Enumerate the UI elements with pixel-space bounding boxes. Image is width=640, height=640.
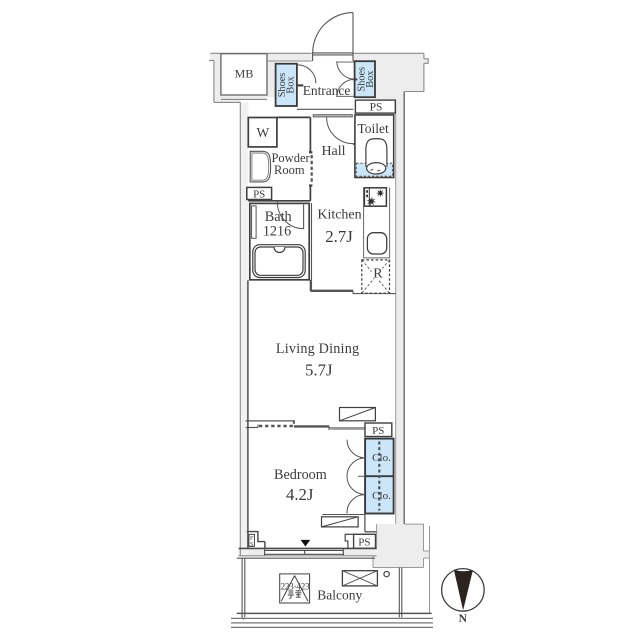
svg-text:223·423: 223·423 <box>280 583 310 593</box>
svg-text:2.7J: 2.7J <box>325 227 353 246</box>
svg-text:PS: PS <box>253 189 265 201</box>
svg-text:R: R <box>373 266 383 281</box>
svg-text:4.2J: 4.2J <box>286 485 314 504</box>
svg-text:Toilet: Toilet <box>357 121 389 136</box>
svg-text:Clo.: Clo. <box>372 490 391 502</box>
svg-text:N: N <box>459 613 468 625</box>
svg-text:PS: PS <box>372 425 384 437</box>
svg-text:PS: PS <box>358 536 370 548</box>
svg-text:Living Dining: Living Dining <box>276 341 359 357</box>
svg-text:Entrance: Entrance <box>303 83 351 98</box>
svg-text:PS: PS <box>370 102 383 114</box>
svg-text:Box: Box <box>285 76 296 94</box>
svg-text:S: S <box>250 542 253 548</box>
svg-text:5.7J: 5.7J <box>305 361 333 380</box>
svg-text:Box: Box <box>365 70 376 88</box>
svg-text:Clo.: Clo. <box>372 452 391 464</box>
svg-text:Hall: Hall <box>321 144 345 159</box>
svg-text:Kitchen: Kitchen <box>317 207 361 222</box>
svg-text:1216: 1216 <box>263 223 291 239</box>
svg-text:MB: MB <box>235 67 254 81</box>
svg-text:Bedroom: Bedroom <box>274 467 327 483</box>
svg-text:W: W <box>257 125 270 140</box>
svg-text:Room: Room <box>274 163 305 177</box>
svg-text:Balcony: Balcony <box>317 588 362 603</box>
